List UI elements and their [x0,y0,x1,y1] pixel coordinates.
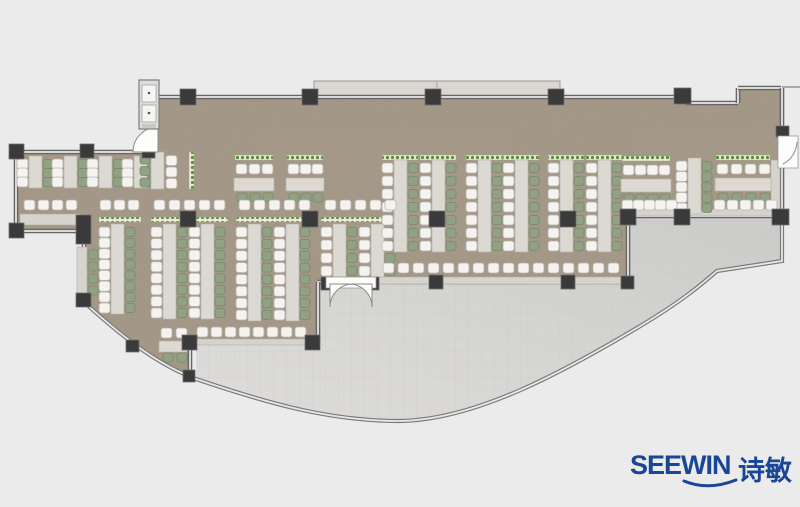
chair-white [503,189,514,199]
chair-white [99,303,110,313]
chair-white [473,263,484,273]
chair-white [299,200,310,210]
chair-white [586,176,597,186]
chair-green [113,169,123,178]
chair-white [284,200,295,210]
chair-green [529,229,539,238]
chair-white [151,227,162,237]
chair-white [274,274,285,284]
chair-white [189,262,200,272]
chair-white [676,172,687,182]
chair-green [125,249,135,258]
planter-strip [189,152,194,189]
chair-white [548,241,559,251]
chair-white [382,176,393,186]
desk-surface [29,156,42,188]
chair-green [529,177,539,186]
chair-white [154,200,165,210]
chair-white [586,163,597,173]
chair-green [446,177,456,186]
desk-surface [201,224,214,319]
chair-white [211,327,222,337]
chair-white [676,161,687,171]
chair-green [78,160,88,169]
chair-white [633,200,644,210]
desk-surface [234,178,274,191]
chair-white [274,227,285,237]
chair-green [43,160,53,169]
fixture-handle [148,92,151,95]
chair-green [177,262,187,271]
chair-white [503,176,514,186]
chair-white [676,193,687,203]
structural-column [674,88,691,104]
chair-white [253,327,264,337]
chair-white [458,263,469,273]
chair-green [408,242,418,251]
desk-surface [478,160,491,252]
chair-white [623,165,634,175]
chair-white [586,241,597,251]
chair-green [88,250,98,259]
chair-white [281,327,292,337]
chair-green [347,267,357,276]
chair-white [466,202,477,212]
chair-green [385,254,395,263]
chair-green [492,190,502,199]
chair-white [114,200,125,210]
chair-green [140,178,150,187]
chair-white [236,310,247,320]
chair-green [702,204,712,213]
structural-column [429,211,445,227]
chair-white [385,200,396,210]
chair-white [420,176,431,186]
chair-white [17,159,28,169]
chair-green [408,177,418,186]
chair-white [321,266,332,276]
chair-green [300,311,310,320]
chair-white [52,177,63,187]
chair-white [321,240,332,250]
chair-white [717,164,728,174]
structural-column [772,209,789,225]
chair-green [347,254,357,263]
chair-white [745,164,756,174]
structural-column [429,275,443,289]
chair-green [125,304,135,313]
chair-white [214,200,225,210]
chair-green [262,228,272,237]
counter [77,247,87,297]
chair-green [300,299,310,308]
chair-white [466,241,477,251]
chair-white [66,200,77,210]
desk-surface [64,156,77,188]
desk-surface [621,179,671,192]
chair-white [274,298,285,308]
chair-green [702,162,712,171]
chair-white [151,273,162,283]
desk-surface [99,156,112,188]
structural-column [674,209,690,225]
structural-column [302,211,318,227]
chair-white [151,285,162,295]
chair-white [753,200,764,210]
chair-green [88,262,98,271]
chair-white [714,200,725,210]
chair-white [269,200,280,210]
chair-white [52,200,63,210]
structural-column [560,211,576,227]
chair-white [503,263,514,273]
chair-white [586,215,597,225]
structural-column [80,144,94,158]
chair-white [169,200,180,210]
chair-white [249,164,260,174]
chair-white [548,163,559,173]
chair-white [274,263,285,273]
chair-white [608,263,619,273]
chair-white [52,159,63,169]
chair-green [347,228,357,237]
chair-green [313,193,323,202]
structural-column [425,89,441,105]
chair-green [574,203,584,212]
chair-white [312,164,323,174]
chair-white [325,200,336,210]
chair-white [359,227,370,237]
structural-column [126,340,139,352]
chair-green [574,164,584,173]
chair-white [586,228,597,238]
chair-white [151,308,162,318]
chair-white [99,292,110,302]
chair-white [236,164,247,174]
chair-white [99,227,110,237]
chair-green [78,169,88,178]
chair-white [99,281,110,291]
counter [378,277,626,284]
chair-white [274,239,285,249]
chair-green [177,309,187,318]
chair-green [408,229,418,238]
chair-green [140,167,150,176]
chair-green [702,172,712,181]
chair-green [702,183,712,192]
chair-white [586,202,597,212]
chair-white [267,327,278,337]
chair-green [262,299,272,308]
planter-strip [466,155,502,160]
chair-green [177,297,187,306]
chair-white [766,200,777,210]
chair-green [215,228,225,237]
chair-white [647,165,658,175]
chair-green [215,285,225,294]
chair-green [612,229,622,238]
chair-green [125,260,135,269]
chair-green [702,193,712,202]
chair-white [370,200,381,210]
chair-white [161,328,172,338]
chair-white [236,286,247,296]
chair-white [197,327,208,337]
chair-white [759,164,770,174]
chair-white [99,249,110,259]
chair-white [236,227,247,237]
desk-surface [248,224,261,321]
structural-column [548,89,564,105]
structural-column [76,215,91,244]
chair-green [125,238,135,247]
chair-green [574,242,584,251]
chair-white [236,298,247,308]
chair-white [383,263,394,273]
chair-green [529,190,539,199]
planter-strip [236,217,312,222]
chair-green [177,274,187,283]
planter-strip [287,155,323,160]
structural-column [9,144,24,159]
chair-white [236,251,247,261]
chair-white [466,189,477,199]
structural-column [76,293,91,307]
chair-white [443,263,454,273]
chair-white [151,250,162,260]
desk-surface [715,178,771,191]
structural-column [776,126,789,137]
chair-white [359,240,370,250]
chair-white [659,165,670,175]
counter [20,214,80,225]
chair-white [548,189,559,199]
chair-green [612,164,622,173]
chair-white [189,308,200,318]
chair-green [88,274,98,283]
chair-white [382,163,393,173]
structural-column [561,275,575,289]
chair-white [731,164,742,174]
lobby-layer [139,80,159,129]
chair-white [676,182,687,192]
chair-white [488,263,499,273]
chair-white [295,327,306,337]
chair-white [128,200,139,210]
chair-white [727,200,738,210]
chair-white [122,159,133,169]
brand-wordmark: SEEWIN [630,450,731,480]
structural-column [305,335,320,350]
chair-white [548,202,559,212]
chair-green [177,228,187,237]
chair-green [177,239,187,248]
structural-column [302,89,318,105]
planter-strip [420,155,456,160]
chair-white [17,177,28,187]
chair-green [446,229,456,238]
chair-white [563,263,574,273]
chair-green [215,309,225,318]
chair-white [666,200,677,210]
desk-surface [111,224,124,314]
chair-white [420,163,431,173]
chair-green [125,293,135,302]
chair-white [503,241,514,251]
chair-white [262,164,273,174]
chair-white [122,168,133,178]
chair-green [408,216,418,225]
chair-white [466,215,477,225]
chair-green [300,275,310,284]
brand-swoosh-icon [682,478,740,492]
chair-white [87,159,98,169]
chair-green [113,160,123,169]
chair-white [321,253,332,263]
desk-surface [333,224,346,277]
chair-white [17,168,28,178]
planter-strip [99,217,141,222]
chair-white [189,239,200,249]
chair-white [189,227,200,237]
chair-white [420,228,431,238]
chair-white [548,176,559,186]
chair-white [382,215,393,225]
chair-green [574,229,584,238]
chair-green [215,239,225,248]
chair-white [99,270,110,280]
planter-strip [716,155,770,160]
planter-strip [586,155,622,160]
chair-white [466,176,477,186]
structural-column [182,335,197,350]
chair-green [446,190,456,199]
chair-white [340,200,351,210]
chair-green [78,178,88,187]
chair-green [408,203,418,212]
chair-green [43,178,53,187]
chair-green [125,282,135,291]
chair-green [262,239,272,248]
structural-column [180,211,196,227]
chair-white [38,200,49,210]
chair-white [420,202,431,212]
chair-white [548,263,559,273]
chair-green [492,203,502,212]
chair-green [492,242,502,251]
chair-white [382,189,393,199]
brand-logo: SEEWIN 诗敏 [630,448,800,492]
chair-white [413,263,424,273]
chair-green [300,287,310,296]
chair-green [262,287,272,296]
chair-green [177,251,187,260]
chair-white [398,263,409,273]
chair-green [529,242,539,251]
chair-white [166,156,177,166]
chair-green [125,228,135,237]
chair-white [420,189,431,199]
chair-white [24,200,35,210]
chair-white [644,200,655,210]
chair-white [151,239,162,249]
chair-green [446,203,456,212]
chair-white [300,164,311,174]
chair-white [99,238,110,248]
chair-white [274,310,285,320]
desk-surface [688,158,701,214]
chair-green [125,271,135,280]
chair-white [518,263,529,273]
chair-green [262,263,272,272]
chair-white [100,200,111,210]
chair-green [215,262,225,271]
chair-white [225,327,236,337]
planter-strip [382,155,418,160]
desk-surface [432,160,445,252]
brand-cjk-wordmark: 诗敏 [738,449,792,488]
structural-column [9,223,24,238]
chair-white [151,296,162,306]
chair-white [189,285,200,295]
chair-green [492,229,502,238]
chair-white [466,228,477,238]
chair-green [300,251,310,260]
fixture-handle [148,112,151,115]
structural-column [180,89,196,105]
chair-white [503,228,514,238]
chair-white [503,202,514,212]
chair-green [529,203,539,212]
chair-white [274,286,285,296]
chair-white [87,168,98,178]
chair-white [52,168,63,178]
chair-green [446,216,456,225]
chair-white [355,200,366,210]
chair-white [655,200,666,210]
office-floor-plan [0,0,800,507]
chair-white [199,200,210,210]
chair-white [184,200,195,210]
counter [194,339,312,345]
desk-surface [598,160,611,252]
chair-green [408,164,418,173]
chair-white [189,250,200,260]
chair-white [503,215,514,225]
structural-column [183,370,195,382]
chair-white [382,228,393,238]
chair-white [635,165,646,175]
chair-white [274,251,285,261]
chair-white [359,266,370,276]
chair-white [740,200,751,210]
chair-white [189,296,200,306]
chair-white [578,263,589,273]
chair-green [612,190,622,199]
planter-strip [548,155,584,160]
planter-strip [622,156,670,161]
chair-green [529,164,539,173]
chair-green [446,242,456,251]
chair-green [43,169,53,178]
desk-surface [286,224,299,321]
chair-green [300,228,310,237]
chair-green [446,164,456,173]
chair-green [612,242,622,251]
lobby-step [142,124,156,128]
chair-green [300,239,310,248]
chair-white [122,177,133,187]
